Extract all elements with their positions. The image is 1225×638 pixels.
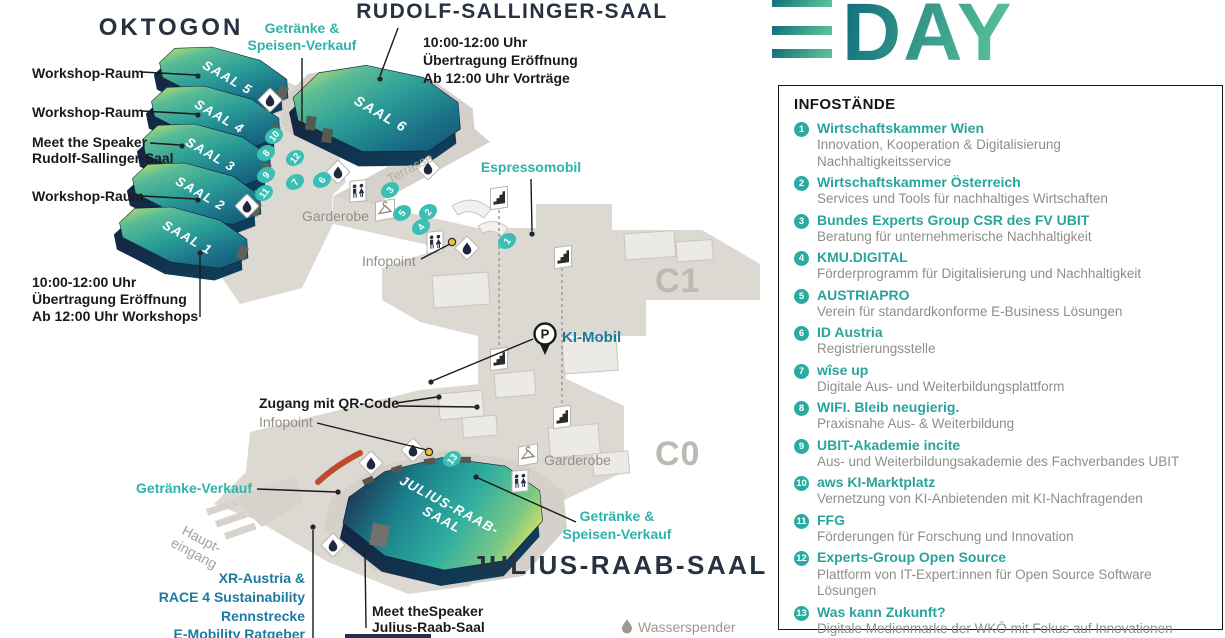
stand-title: Experts-Group Open Source xyxy=(817,549,1207,566)
stand-desc: Verein für standardkonforme E-Business L… xyxy=(817,304,1122,320)
cloakroom-hanger-icon xyxy=(376,199,395,221)
stand-list-item: 13 Was kann Zukunft? Digitale Medienmark… xyxy=(794,604,1207,638)
stand-number-badge: 5 xyxy=(794,289,809,304)
wc-icon xyxy=(350,180,366,203)
callout-xr-1: XR-Austria & xyxy=(219,570,305,586)
stand-title: Bundes Experts Group CSR des FV UBIT xyxy=(817,212,1092,229)
callout-meet-speaker-julius-2: Julius-Raab-Saal xyxy=(372,619,485,635)
callout-xr-4: E-Mobility Ratgeber xyxy=(174,626,306,638)
stand-desc: Registrierungsstelle xyxy=(817,341,936,357)
stand-title: Wirtschaftskammer Wien xyxy=(817,120,1061,137)
panel-title: INFOSTÄNDE xyxy=(794,96,1207,113)
stairs-icon xyxy=(554,405,571,428)
stand-desc: Digitale Medienmarke der WKÖ mit Fokus a… xyxy=(817,621,1173,637)
callout-workshop-3: Workshop-Raum xyxy=(32,188,144,204)
parking-pin-letter: P xyxy=(541,327,550,342)
stand-number-badge: 7 xyxy=(794,364,809,379)
stand-desc: Aus- und Weiterbildungsakademie des Fach… xyxy=(817,454,1179,470)
infostaende-panel: INFOSTÄNDE 1 Wirtschaftskammer Wien Inno… xyxy=(778,85,1223,630)
stand-title: AUSTRIAPRO xyxy=(817,287,1122,304)
stand-number-badge: 1 xyxy=(794,122,809,137)
label-infopoint-upper: Infopoint xyxy=(362,253,416,269)
stand-number-badge: 11 xyxy=(794,514,809,529)
stand-title: ID Austria xyxy=(817,324,936,341)
venue-floor-plan: SAAL 5 SAAL 4 SAAL 3 SAAL 2 SAAL 1 SAAL … xyxy=(0,0,780,638)
stand-list-item: 12 Experts-Group Open Source Plattform v… xyxy=(794,549,1207,599)
stand-list-item: 11 FFG Förderungen für Forschung und Inn… xyxy=(794,512,1207,546)
wc-icon xyxy=(427,231,443,254)
stand-desc: Nachhaltigkeitsservice xyxy=(817,154,1061,170)
callout-drinks-only: Getränke-Verkauf xyxy=(136,480,252,496)
logo-e-bars xyxy=(772,0,832,58)
area-title-julius-raab: JULIUS-RAAB-SAAL xyxy=(472,550,768,580)
callout-meet-speaker-rudolf-1: Meet the Speaker xyxy=(32,134,148,150)
oktogon-schedule-2: Übertragung Eröffnung xyxy=(32,291,187,307)
water-drop-legend-icon xyxy=(622,620,632,634)
callout-drinks-food-upper-1: Getränke & xyxy=(265,20,340,36)
stairs-icon xyxy=(555,245,572,268)
area-title-rudolf-sallinger: RUDOLF-SALLINGER-SAAL xyxy=(356,0,667,23)
stand-list-item: 4 KMU.DIGITAL Förderprogramm für Digital… xyxy=(794,249,1207,283)
stand-title: aws KI-Marktplatz xyxy=(817,474,1143,491)
stand-list-item: 5 AUSTRIAPRO Verein für standardkonforme… xyxy=(794,287,1207,321)
stand-number-badge: 9 xyxy=(794,439,809,454)
wc-icon xyxy=(512,470,528,493)
stand-title: UBIT-Akademie incite xyxy=(817,437,1179,454)
logo-day-text: DAY xyxy=(842,0,1014,64)
rudolf-schedule-2: Übertragung Eröffnung xyxy=(423,52,578,68)
stand-desc: Plattform von IT-Expert:innen für Open S… xyxy=(817,567,1207,600)
espressomobil-counter xyxy=(452,200,491,218)
callout-meet-speaker-rudolf-2: Rudolf-Sallinger-Saal xyxy=(32,150,174,166)
stand-desc: Vernetzung von KI-Anbietenden mit KI-Nac… xyxy=(817,491,1143,507)
callout-xr-2: RACE 4 Sustainability xyxy=(159,589,305,605)
callout-espressomobil: Espressomobil xyxy=(481,159,581,175)
area-title-oktogon: OKTOGON xyxy=(99,14,244,41)
label-garderobe-lower: Garderobe xyxy=(544,452,611,468)
stand-title: Wirtschaftskammer Österreich xyxy=(817,174,1108,191)
stand-desc: Innovation, Kooperation & Digitalisierun… xyxy=(817,137,1061,153)
legend-wasserspender: Wasserspender xyxy=(638,619,736,635)
stand-number-badge: 4 xyxy=(794,251,809,266)
stand-desc: Digitale Aus- und Weiterbildungsplattfor… xyxy=(817,379,1064,395)
stand-desc: Beratung für unternehmerische Nachhaltig… xyxy=(817,229,1092,245)
stand-list-item: 10 aws KI-Marktplatz Vernetzung von KI-A… xyxy=(794,474,1207,508)
cloakroom-hanger-icon xyxy=(519,444,538,466)
oktogon-schedule-1: 10:00-12:00 Uhr xyxy=(32,274,137,290)
stand-number-badge: 2 xyxy=(794,176,809,191)
stand-list-item: 7 wîse up Digitale Aus- und Weiterbildun… xyxy=(794,362,1207,396)
stand-list-item: 3 Bundes Experts Group CSR des FV UBIT B… xyxy=(794,212,1207,246)
stand-desc: Förderprogramm für Digitalisierung und N… xyxy=(817,266,1141,282)
stand-title: WIFI. Bleib neugierig. xyxy=(817,399,1014,416)
stand-desc: Services und Tools für nachhaltiges Wirt… xyxy=(817,191,1108,207)
callout-workshop-2: Workshop-Raum xyxy=(32,104,144,120)
callout-zugang-qr: Zugang mit QR-Code xyxy=(259,395,399,411)
callout-meet-speaker-julius-1: Meet theSpeaker xyxy=(372,603,484,619)
callout-drinks-food-upper-2: Speisen-Verkauf xyxy=(248,37,357,53)
stand-number-badge: 6 xyxy=(794,326,809,341)
stand-number-badge: 12 xyxy=(794,551,809,566)
callout-drinks-food-lower-2: Speisen-Verkauf xyxy=(563,526,672,542)
eday-venue-plan: { "logo": { "word": "DAY" }, "map": { "a… xyxy=(0,0,1225,638)
callout-ki-mobil: KI-Mobil xyxy=(562,329,621,346)
callout-workshop-1: Workshop-Raum xyxy=(32,65,144,81)
label-garderobe-upper: Garderobe xyxy=(302,208,369,224)
level-label-c0: C0 xyxy=(655,435,700,473)
stand-number-badge: 10 xyxy=(794,476,809,491)
oktogon-schedule-3: Ab 12:00 Uhr Workshops xyxy=(32,308,198,324)
label-infopoint-lower: Infopoint xyxy=(259,414,313,430)
callout-drinks-food-lower-1: Getränke & xyxy=(580,508,655,524)
stand-number-badge: 3 xyxy=(794,214,809,229)
stand-list-item: 6 ID Austria Registrierungsstelle xyxy=(794,324,1207,358)
stand-list-item: 2 Wirtschaftskammer Österreich Services … xyxy=(794,174,1207,208)
haupteingang-label: Haupt- eingang xyxy=(168,520,227,572)
stand-list-item: 8 WIFI. Bleib neugierig. Praxisnahe Aus-… xyxy=(794,399,1207,433)
stand-desc: Förderungen für Forschung und Innovation xyxy=(817,529,1074,545)
stand-list-item: 1 Wirtschaftskammer Wien Innovation, Koo… xyxy=(794,120,1207,170)
eday-logo: DAY xyxy=(768,0,1068,64)
stand-title: KMU.DIGITAL xyxy=(817,249,1141,266)
stand-title: FFG xyxy=(817,512,1074,529)
callout-xr-3: Rennstrecke xyxy=(221,608,305,624)
stand-title: Was kann Zukunft? xyxy=(817,604,1173,621)
stand-list-item: 9 UBIT-Akademie incite Aus- und Weiterbi… xyxy=(794,437,1207,471)
rudolf-schedule-3: Ab 12:00 Uhr Vorträge xyxy=(423,70,570,86)
stand-desc: Praxisnahe Aus- & Weiterbildung xyxy=(817,416,1014,432)
rudolf-schedule-1: 10:00-12:00 Uhr xyxy=(423,34,528,50)
stairs-icon xyxy=(491,186,508,209)
stand-number-badge: 13 xyxy=(794,606,809,621)
stand-title: wîse up xyxy=(817,362,1064,379)
wasserspender-legend: Wasserspender xyxy=(622,619,736,635)
level-label-c1: C1 xyxy=(655,262,700,300)
stand-number-badge: 8 xyxy=(794,401,809,416)
